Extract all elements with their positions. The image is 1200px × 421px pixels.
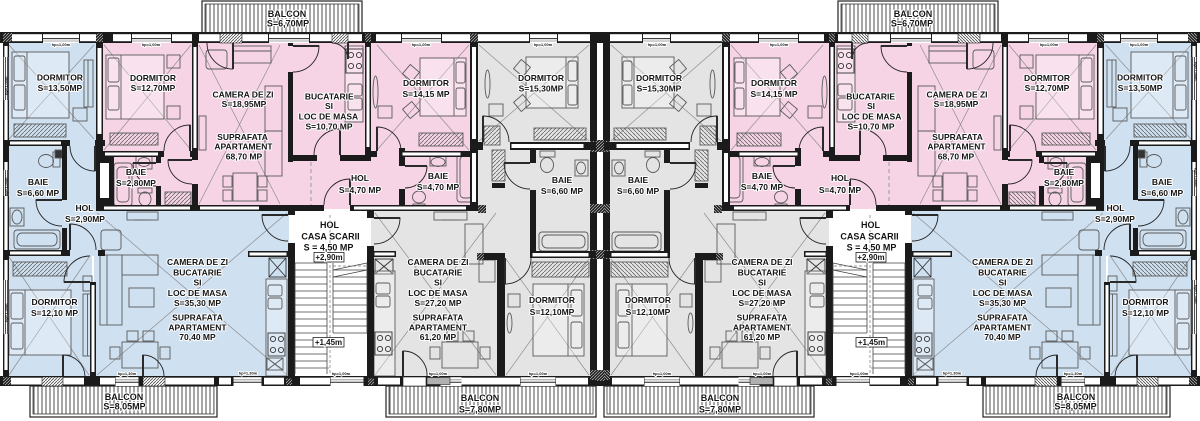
svg-text:HOL: HOL [861, 220, 881, 230]
svg-text:S=12,70MP: S=12,70MP [1025, 83, 1070, 93]
svg-text:S=6,70MP: S=6,70MP [267, 19, 309, 29]
svg-text:BUCATARIE: BUCATARIE [978, 267, 1027, 277]
svg-text:SUPRAFATA: SUPRAFATA [172, 313, 223, 323]
svg-text:+1,45m: +1,45m [315, 338, 342, 347]
svg-text:DORMITOR: DORMITOR [625, 295, 671, 305]
svg-text:APARTAMENT: APARTAMENT [168, 322, 227, 332]
svg-text:S=13,50MP: S=13,50MP [38, 83, 83, 93]
svg-text:SI: SI [867, 101, 875, 111]
svg-text:+2,90m: +2,90m [315, 253, 342, 262]
svg-text:S=15,30MP: S=15,30MP [519, 84, 564, 94]
svg-text:hp=1,00m: hp=1,00m [770, 42, 789, 47]
svg-text:CAMERA DE ZI: CAMERA DE ZI [926, 90, 987, 100]
svg-text:APARTAMENT: APARTAMENT [409, 322, 468, 332]
svg-text:+1,45m: +1,45m [858, 338, 885, 347]
svg-text:BAIE: BAIE [28, 177, 49, 187]
svg-text:S=8,05MP: S=8,05MP [103, 402, 145, 412]
svg-text:S=6,60 MP: S=6,60 MP [1141, 188, 1184, 198]
svg-text:SUPRAFATA: SUPRAFATA [977, 313, 1028, 323]
svg-text:SI: SI [434, 278, 442, 288]
svg-text:BALCON: BALCON [894, 9, 933, 19]
svg-text:S=12,10MP: S=12,10MP [626, 307, 671, 317]
svg-text:BAIE: BAIE [126, 167, 147, 177]
svg-text:SUPRAFATA: SUPRAFATA [737, 313, 788, 323]
svg-text:DORMITOR: DORMITOR [751, 78, 797, 88]
svg-text:S=7,80MP: S=7,80MP [459, 405, 501, 415]
svg-text:hp=1,00m: hp=1,00m [753, 371, 772, 376]
svg-text:LOC DE MASA: LOC DE MASA [732, 288, 792, 298]
svg-text:hp=1,30m: hp=1,30m [118, 371, 137, 376]
svg-text:hp=1,00m: hp=1,00m [1194, 168, 1199, 187]
svg-text:hp=1,30m: hp=1,30m [1064, 371, 1083, 376]
svg-text:S=12,10 MP: S=12,10 MP [1122, 308, 1169, 318]
svg-text:CAMERA DE ZI: CAMERA DE ZI [212, 90, 273, 100]
svg-text:DORMITOR: DORMITOR [1024, 73, 1070, 83]
svg-text:DORMITOR: DORMITOR [31, 297, 77, 307]
svg-text:hp=1,00m: hp=1,00m [412, 42, 431, 47]
svg-text:S=6,60 MP: S=6,60 MP [617, 186, 660, 196]
svg-text:HOL: HOL [831, 173, 849, 183]
svg-text:S=18,95MP: S=18,95MP [934, 99, 979, 109]
svg-text:BAIE: BAIE [428, 171, 449, 181]
svg-text:S = 4,50 MP: S = 4,50 MP [304, 243, 354, 253]
svg-text:BAIE: BAIE [752, 171, 773, 181]
svg-text:LOC DE MASA: LOC DE MASA [842, 112, 902, 122]
svg-text:BALCON: BALCON [461, 393, 500, 403]
svg-text:BALCON: BALCON [268, 9, 307, 19]
svg-text:S=4,70 MP: S=4,70 MP [417, 182, 460, 192]
svg-text:DORMITOR: DORMITOR [529, 295, 575, 305]
svg-text:S=12,10MP: S=12,10MP [530, 307, 575, 317]
svg-text:hp=1,00m: hp=1,00m [1130, 42, 1149, 47]
svg-text:DORMITOR: DORMITOR [403, 78, 449, 88]
svg-text:HOL: HOL [1107, 203, 1125, 213]
svg-text:hp=1,00m: hp=1,00m [648, 42, 667, 47]
svg-text:BUCATARIE: BUCATARIE [305, 91, 354, 101]
svg-text:BALCON: BALCON [105, 392, 144, 402]
svg-text:HOL: HOL [76, 203, 94, 213]
svg-text:S=2,90MP: S=2,90MP [65, 214, 105, 224]
svg-text:70,40 MP: 70,40 MP [179, 332, 216, 342]
svg-text:LOC DE MASA: LOC DE MASA [973, 288, 1033, 298]
svg-text:61,20 MP: 61,20 MP [744, 332, 781, 342]
svg-text:61,20 MP: 61,20 MP [420, 332, 457, 342]
svg-text:S=6,60 MP: S=6,60 MP [17, 188, 60, 198]
svg-text:SI: SI [998, 278, 1006, 288]
svg-text:HOL: HOL [320, 220, 340, 230]
svg-text:S=10,70 MP: S=10,70 MP [847, 121, 894, 131]
svg-text:BUCATARIE: BUCATARIE [173, 267, 222, 277]
svg-text:BALCON: BALCON [701, 393, 740, 403]
svg-text:BALCON: BALCON [1057, 392, 1096, 402]
svg-text:APARTAMENT: APARTAMENT [214, 142, 273, 152]
svg-text:BAIE: BAIE [628, 175, 649, 185]
svg-text:S=6,60 MP: S=6,60 MP [541, 186, 584, 196]
svg-text:S=2,80MP: S=2,80MP [116, 178, 156, 188]
svg-text:68,70 MP: 68,70 MP [938, 151, 975, 161]
svg-text:hp=1,00m: hp=1,00m [534, 42, 553, 47]
svg-text:hp=1,00m: hp=1,00m [142, 42, 161, 47]
svg-text:SUPRAFATA: SUPRAFATA [217, 132, 268, 142]
svg-text:hp=1,00m: hp=1,00m [529, 371, 548, 376]
svg-text:S=12,10 MP: S=12,10 MP [31, 308, 78, 318]
svg-text:APARTAMENT: APARTAMENT [927, 142, 986, 152]
svg-text:70,40 MP: 70,40 MP [984, 332, 1021, 342]
svg-text:DORMITOR: DORMITOR [130, 73, 176, 83]
svg-text:S=4,70 MP: S=4,70 MP [741, 182, 784, 192]
svg-text:hp=1,00m: hp=1,00m [1040, 42, 1059, 47]
svg-text:S=6,70MP: S=6,70MP [891, 19, 933, 29]
svg-text:CAMERA DE ZI: CAMERA DE ZI [972, 257, 1033, 267]
svg-text:S=4,70 MP: S=4,70 MP [339, 185, 382, 195]
svg-text:hp=1,30m: hp=1,30m [1194, 285, 1199, 304]
svg-text:S=10,70 MP: S=10,70 MP [305, 121, 352, 131]
svg-text:hp=1,00m: hp=1,00m [52, 42, 71, 47]
svg-text:BAIE: BAIE [1152, 177, 1173, 187]
svg-text:S=15,30MP: S=15,30MP [637, 84, 682, 94]
svg-text:hp=1,00m: hp=1,00m [4, 177, 9, 196]
svg-text:CASA SCARII: CASA SCARII [840, 232, 898, 242]
svg-text:S=14,15 MP: S=14,15 MP [402, 89, 449, 99]
svg-text:S=13,50MP: S=13,50MP [1118, 83, 1163, 93]
svg-text:DORMITOR: DORMITOR [636, 73, 682, 83]
svg-text:CAMERA DE ZI: CAMERA DE ZI [731, 257, 792, 267]
svg-text:hp=1,30m: hp=1,30m [4, 303, 9, 322]
svg-text:hp=1,00m: hp=1,00m [429, 371, 448, 376]
svg-text:S=2,90MP: S=2,90MP [1095, 214, 1135, 224]
svg-text:S=14,15 MP: S=14,15 MP [750, 89, 797, 99]
svg-text:S=35,30 MP: S=35,30 MP [174, 298, 221, 308]
svg-text:DORMITOR: DORMITOR [37, 73, 83, 83]
svg-text:APARTAMENT: APARTAMENT [973, 322, 1032, 332]
svg-text:hp=1,00m: hp=1,00m [653, 371, 672, 376]
svg-text:S=12,70MP: S=12,70MP [131, 83, 176, 93]
svg-text:68,70 MP: 68,70 MP [226, 151, 263, 161]
svg-text:DORMITOR: DORMITOR [1122, 297, 1168, 307]
svg-text:DORMITOR: DORMITOR [1117, 73, 1163, 83]
svg-text:SI: SI [325, 101, 333, 111]
svg-text:SI: SI [758, 278, 766, 288]
svg-text:hp=1,30m: hp=1,30m [943, 371, 962, 376]
svg-text:+2,90m: +2,90m [857, 253, 884, 262]
svg-text:BAIE: BAIE [1054, 167, 1075, 177]
svg-text:BUCATARIE: BUCATARIE [414, 267, 463, 277]
svg-text:S=27,20 MP: S=27,20 MP [414, 298, 461, 308]
svg-text:hp=1,00m: hp=1,00m [850, 371, 869, 376]
svg-text:S=2,80MP: S=2,80MP [1044, 178, 1084, 188]
svg-text:BAIE: BAIE [552, 175, 573, 185]
svg-text:hp=1,00m: hp=1,00m [1194, 62, 1199, 81]
svg-text:S=4,70 MP: S=4,70 MP [819, 185, 862, 195]
svg-text:LOC DE MASA: LOC DE MASA [299, 112, 359, 122]
svg-text:S=7,80MP: S=7,80MP [699, 405, 741, 415]
svg-text:APARTAMENT: APARTAMENT [733, 322, 792, 332]
svg-text:LOC DE MASA: LOC DE MASA [168, 288, 228, 298]
svg-text:LOC DE MASA: LOC DE MASA [408, 288, 468, 298]
svg-text:SUPRAFATA: SUPRAFATA [413, 313, 464, 323]
svg-text:SUPRAFATA: SUPRAFATA [932, 132, 983, 142]
svg-text:S=35,30 MP: S=35,30 MP [979, 298, 1026, 308]
svg-text:hp=1,00m: hp=1,00m [332, 371, 351, 376]
svg-text:CAMERA DE ZI: CAMERA DE ZI [407, 257, 468, 267]
svg-text:S=18,95MP: S=18,95MP [222, 99, 267, 109]
svg-text:S=8,05MP: S=8,05MP [1054, 402, 1096, 412]
svg-text:BUCATARIE: BUCATARIE [846, 91, 895, 101]
svg-text:CAMERA DE ZI: CAMERA DE ZI [167, 257, 228, 267]
svg-text:S = 4,50 MP: S = 4,50 MP [847, 243, 897, 253]
svg-text:BUCATARIE: BUCATARIE [738, 267, 787, 277]
svg-text:CASA SCARII: CASA SCARII [301, 232, 359, 242]
svg-text:hp=1,30m: hp=1,30m [239, 371, 258, 376]
svg-text:SI: SI [193, 278, 201, 288]
svg-text:S=27,20 MP: S=27,20 MP [738, 298, 785, 308]
svg-text:HOL: HOL [351, 173, 369, 183]
svg-text:hp=1,00m: hp=1,00m [4, 76, 9, 95]
svg-text:DORMITOR: DORMITOR [518, 73, 564, 83]
